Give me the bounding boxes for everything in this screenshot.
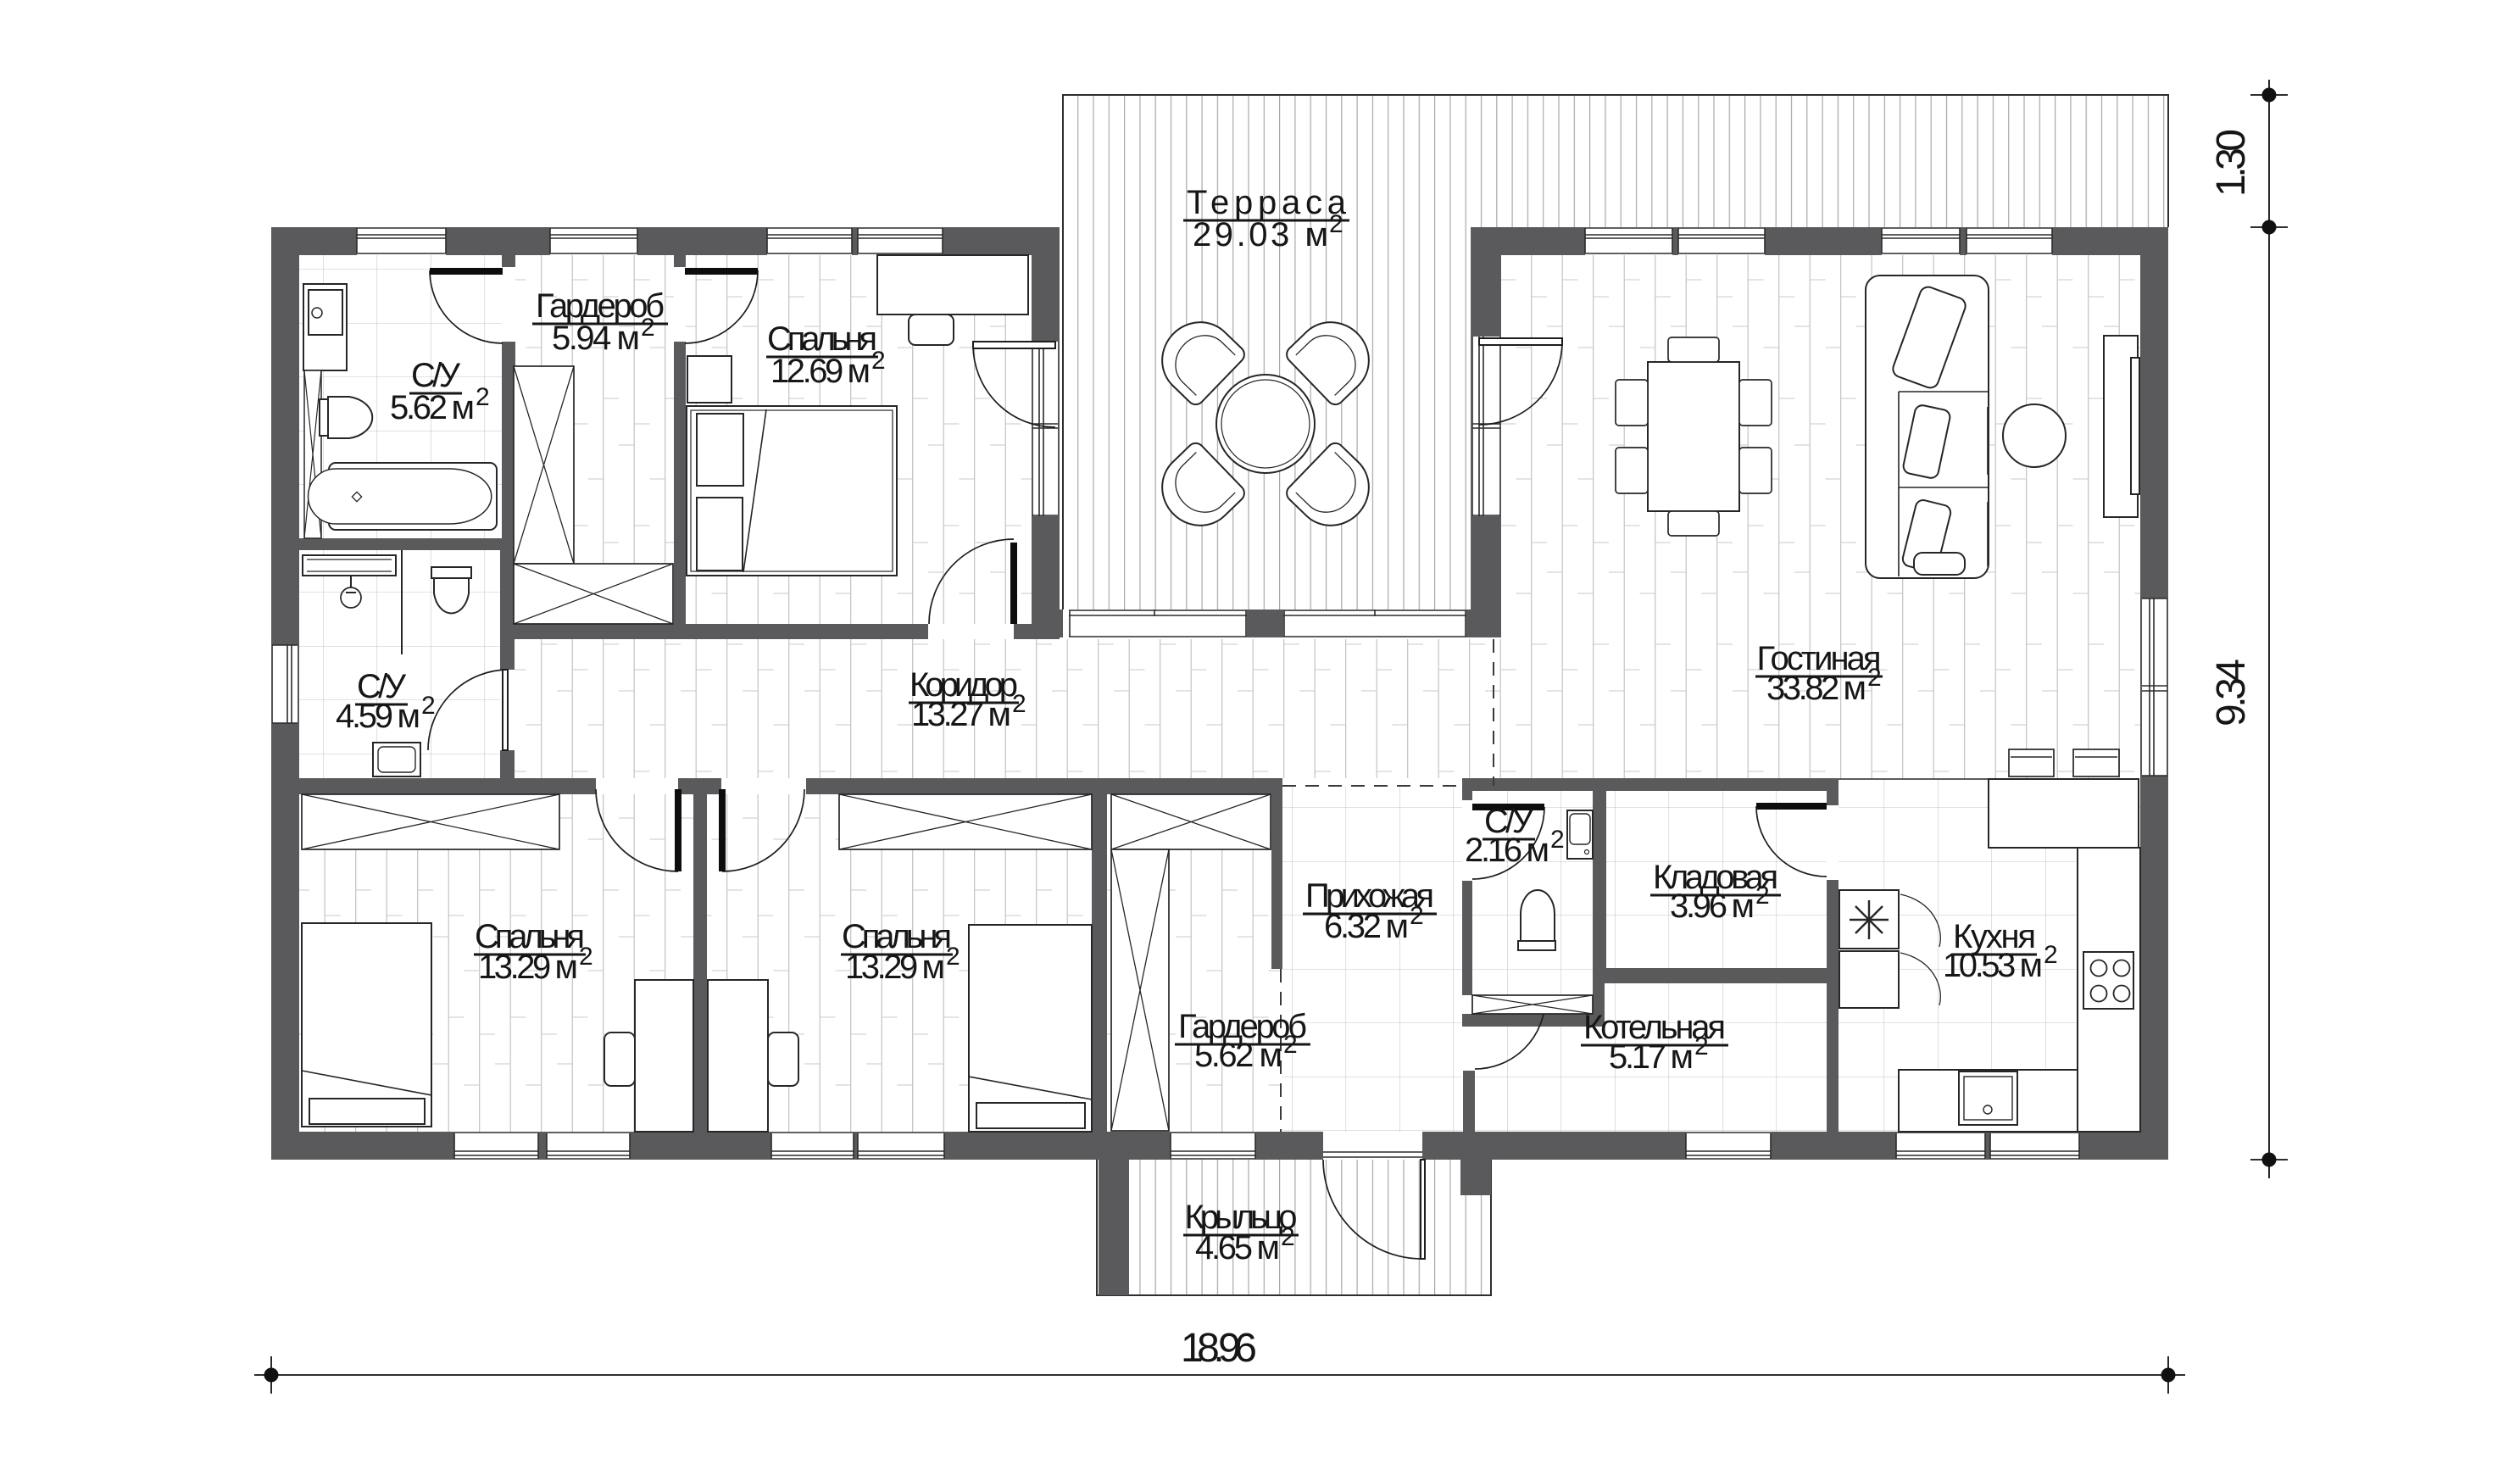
- svg-text:2: 2: [871, 347, 886, 375]
- svg-text:2: 2: [1329, 210, 1343, 238]
- svg-text:13.27 м: 13.27 м: [911, 696, 1011, 733]
- svg-text:5.62 м: 5.62 м: [1194, 1037, 1282, 1074]
- svg-text:2: 2: [421, 692, 436, 720]
- svg-text:6.32 м: 6.32 м: [1324, 908, 1409, 945]
- svg-text:2: 2: [1281, 1223, 1295, 1251]
- svg-text:12.69 м: 12.69 м: [770, 353, 871, 390]
- svg-text:13.29 м: 13.29 м: [845, 949, 945, 986]
- svg-text:2: 2: [946, 943, 960, 971]
- svg-text:2: 2: [1694, 1032, 1709, 1060]
- svg-text:2.16 м: 2.16 м: [1465, 832, 1549, 869]
- svg-text:13.29 м: 13.29 м: [478, 949, 578, 986]
- svg-text:5.17 м: 5.17 м: [1609, 1038, 1694, 1076]
- svg-text:4.65 м: 4.65 м: [1195, 1229, 1280, 1266]
- svg-text:18.96: 18.96: [1181, 1326, 1257, 1371]
- svg-text:1.30: 1.30: [2209, 129, 2254, 197]
- svg-text:4.59 м: 4.59 м: [336, 698, 420, 735]
- svg-text:10.53 м: 10.53 м: [1943, 947, 2043, 984]
- svg-text:33.82 м: 33.82 м: [1766, 670, 1866, 707]
- svg-text:2: 2: [1550, 826, 1565, 854]
- svg-text:2: 2: [1410, 902, 1424, 930]
- svg-text:5.62 м: 5.62 м: [390, 389, 475, 426]
- svg-text:2: 2: [476, 383, 490, 411]
- svg-text:2: 2: [1867, 664, 1882, 692]
- svg-text:2: 2: [641, 314, 655, 342]
- svg-text:5.94 м: 5.94 м: [552, 320, 640, 357]
- svg-text:3.96 м: 3.96 м: [1670, 888, 1755, 925]
- svg-text:2: 2: [1283, 1031, 1298, 1059]
- svg-text:2: 2: [579, 943, 593, 971]
- svg-text:9.34: 9.34: [2209, 659, 2254, 726]
- svg-text:2: 2: [1012, 690, 1026, 718]
- svg-text:2: 2: [2044, 941, 2058, 969]
- svg-text:2: 2: [1755, 882, 1770, 910]
